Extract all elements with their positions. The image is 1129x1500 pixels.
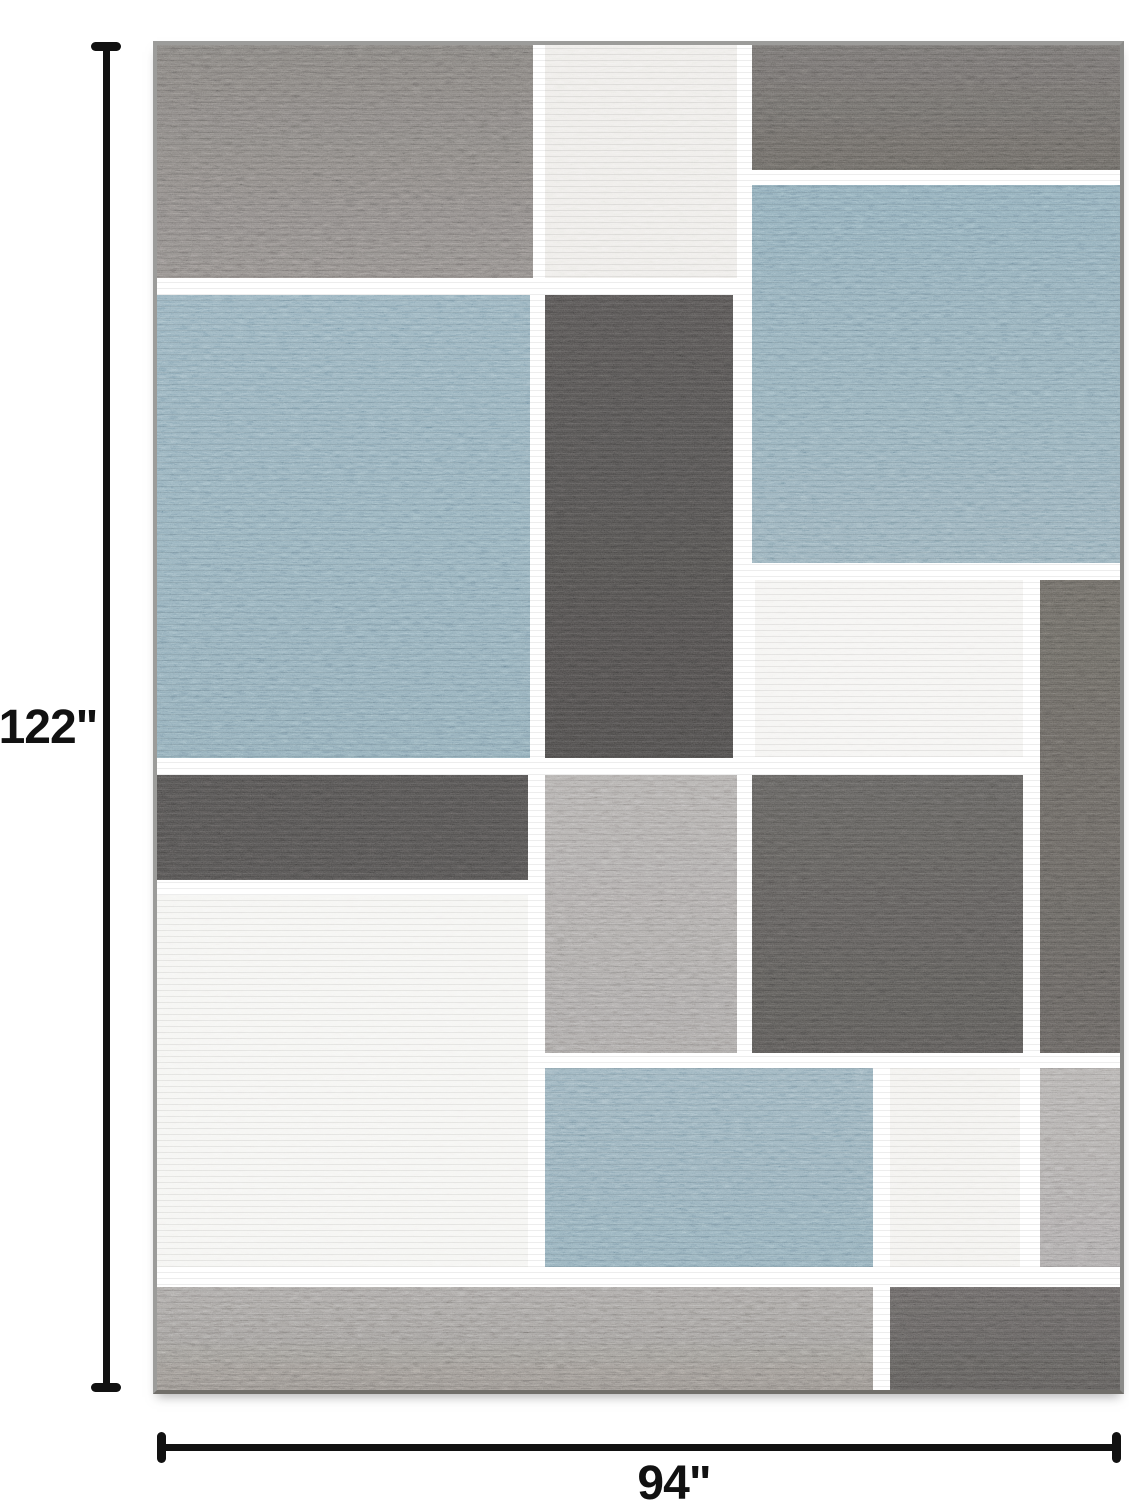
width-dimension-cap-right — [1112, 1432, 1121, 1463]
rug-block-left-dark-strip — [157, 775, 528, 880]
width-dimension-line — [160, 1444, 1118, 1451]
rug-block-bottom-white — [890, 1068, 1020, 1267]
rug-block-left-white — [157, 895, 528, 1267]
rug-block-center-charcoal — [545, 295, 733, 758]
rug-block-bottom-right-light-gray — [1040, 1068, 1120, 1267]
rug-block-top-white — [545, 45, 737, 278]
rug-block-bottom-strip-gray — [157, 1287, 873, 1390]
height-dimension-cap-top — [91, 42, 121, 51]
width-dimension-cap-left — [157, 1432, 166, 1463]
rug-block-bottom-strip-dark — [890, 1287, 1120, 1390]
width-dimension-label: 94" — [598, 1459, 750, 1500]
rug-block-bottom-blue — [545, 1068, 873, 1267]
rug-block-mid-white — [755, 580, 1023, 757]
rug-block-top-left-gray — [157, 45, 533, 278]
rug-block-top-right-gray — [752, 45, 1120, 170]
height-dimension-cap-bottom — [91, 1383, 121, 1392]
height-dimension-label: 122" — [0, 703, 100, 753]
height-dimension-line — [103, 46, 110, 1387]
product-image: 122" — [0, 0, 1129, 1500]
rug-block-left-blue — [157, 295, 530, 758]
rug-block-right-column-dark-gray — [1040, 580, 1120, 1053]
rug-block-right-blue — [752, 185, 1120, 563]
rug-pattern — [157, 45, 1120, 1390]
rug-block-center-medium-gray — [545, 775, 737, 1053]
rug-block-mid-right-dark-gray — [752, 775, 1023, 1053]
rug — [153, 41, 1124, 1394]
